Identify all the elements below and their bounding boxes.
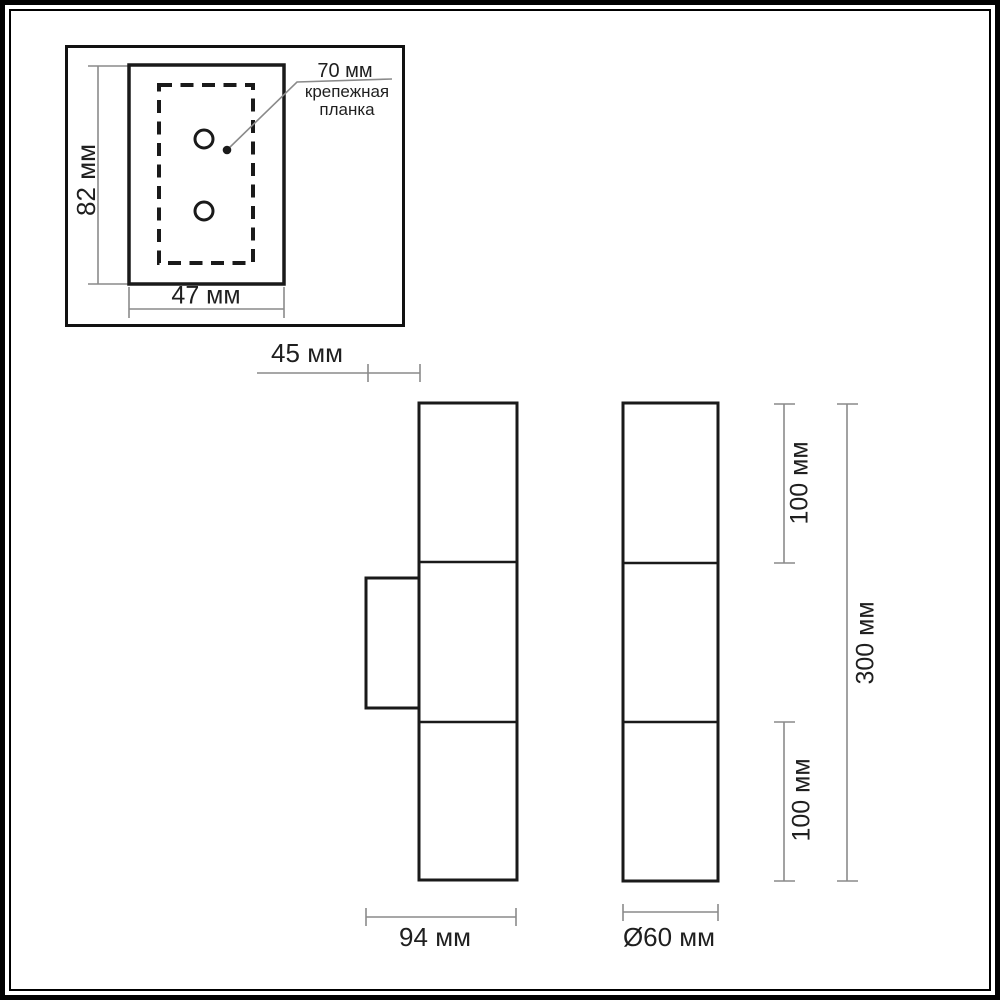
front-view-body (623, 403, 718, 881)
dim-label-hole-spacing: 70 мм (317, 61, 372, 81)
dim-label-wall-offset: 45 мм (271, 340, 343, 366)
backplate-outline (129, 65, 284, 284)
screw-hole-top (195, 130, 213, 148)
screw-hole-bottom (195, 202, 213, 220)
leader-dot (223, 146, 232, 155)
side-view-wall-bracket (366, 578, 420, 708)
dim-label-body-depth: 94 мм (399, 924, 471, 950)
side-view-body (419, 403, 517, 880)
mounting-plate-caption-line1: крепежная (305, 83, 389, 101)
dimension-drawing-page: 82 мм 47 мм 70 мм крепежная планка 45 мм… (0, 0, 1000, 1000)
dim-label-bottom-section: 100 мм (790, 758, 815, 841)
dim-label-total-height: 300 мм (854, 601, 879, 684)
dim-label-plate-width: 47 мм (171, 284, 240, 309)
mounting-plate-caption: крепежная планка (305, 83, 389, 119)
dim-label-diameter: Ø60 мм (623, 924, 715, 950)
dim-diameter (623, 904, 718, 921)
dim-label-top-section: 100 мм (788, 441, 813, 524)
drawing-linework (0, 0, 1000, 1000)
dim-label-plate-height: 82 мм (73, 144, 99, 216)
mounting-plate-caption-line2: планка (305, 101, 389, 119)
